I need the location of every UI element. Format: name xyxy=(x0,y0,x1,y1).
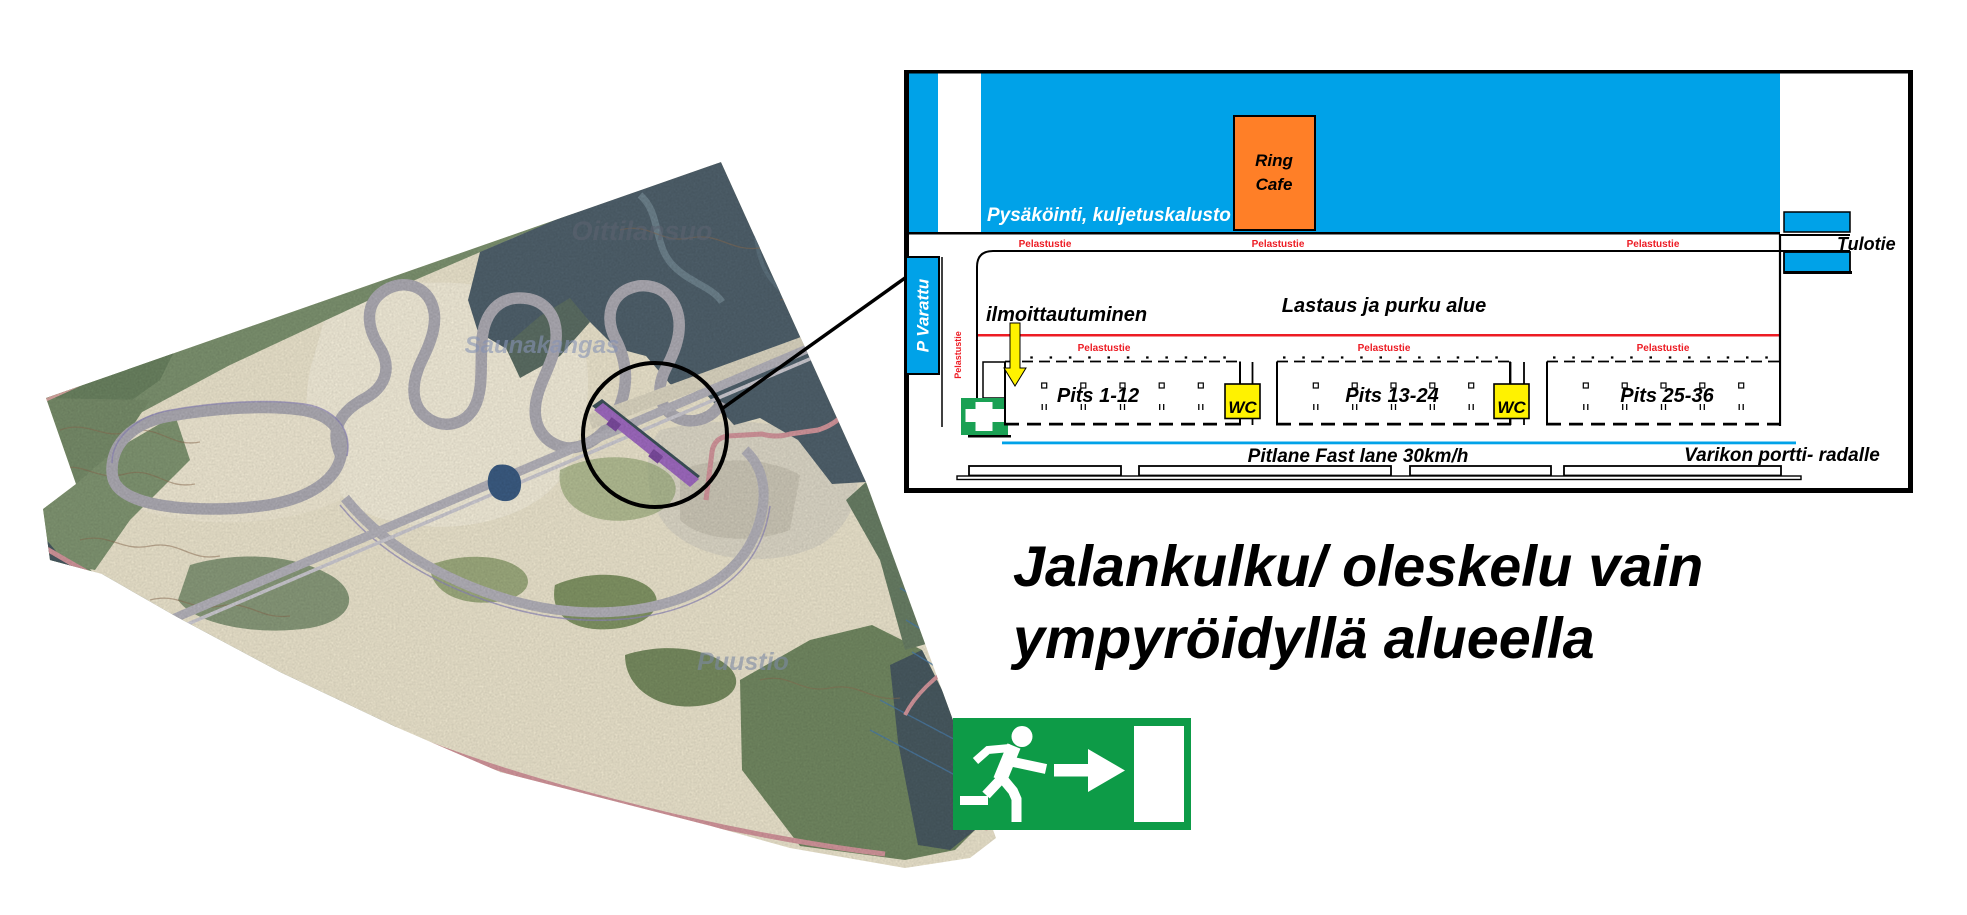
svg-text:Pits 1-12: Pits 1-12 xyxy=(1057,385,1139,407)
svg-text:Saunakangas: Saunakangas xyxy=(465,332,620,359)
svg-text:Jalankulku/ oleskelu vain: Jalankulku/ oleskelu vain xyxy=(1013,535,1703,599)
svg-text:Pits 25-36: Pits 25-36 xyxy=(1620,385,1714,407)
svg-text:WC: WC xyxy=(1497,398,1526,417)
svg-text:P Varattu: P Varattu xyxy=(913,278,932,352)
svg-text:Lastaus ja purku alue: Lastaus ja purku alue xyxy=(1282,295,1487,317)
svg-text:Cafe: Cafe xyxy=(1256,175,1293,194)
svg-text:Oittilansuo: Oittilansuo xyxy=(572,216,713,246)
svg-text:Puustio: Puustio xyxy=(697,648,789,676)
svg-text:Pelastustie: Pelastustie xyxy=(953,331,963,379)
svg-text:Pelastustie: Pelastustie xyxy=(1627,239,1680,250)
svg-text:Pelastustie: Pelastustie xyxy=(1019,239,1072,250)
svg-text:Tulotie: Tulotie xyxy=(1837,234,1896,254)
svg-text:Pysäköinti, kuljetuskalusto: Pysäköinti, kuljetuskalusto xyxy=(987,205,1231,226)
svg-text:Pits 13-24: Pits 13-24 xyxy=(1345,385,1438,407)
svg-text:Varikon portti- radalle: Varikon portti- radalle xyxy=(1684,445,1880,466)
svg-text:Pitlane Fast lane 30km/h: Pitlane Fast lane 30km/h xyxy=(1248,446,1469,467)
svg-text:WC: WC xyxy=(1228,398,1257,417)
svg-text:Pelastustie: Pelastustie xyxy=(1078,343,1131,354)
svg-text:Pelastustie: Pelastustie xyxy=(1358,343,1411,354)
svg-text:Pelastustie: Pelastustie xyxy=(1637,343,1690,354)
svg-text:Ring: Ring xyxy=(1255,151,1293,170)
svg-text:Pelastustie: Pelastustie xyxy=(1252,239,1305,250)
svg-text:ympyröidyllä alueella: ympyröidyllä alueella xyxy=(1010,607,1595,671)
